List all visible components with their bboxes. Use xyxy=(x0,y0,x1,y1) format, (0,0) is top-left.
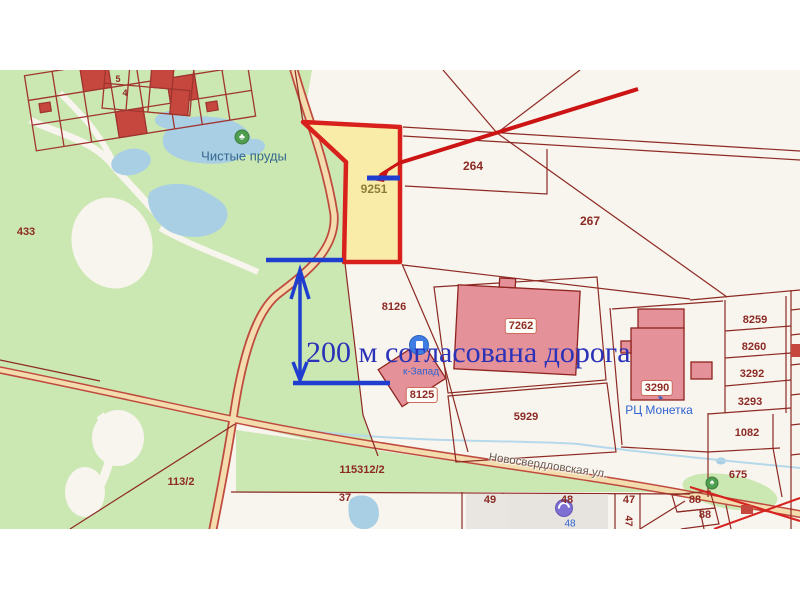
parcel-label-37: 37 xyxy=(339,492,351,504)
parcel-label-7262[interactable]: 7262 xyxy=(505,318,537,334)
park-poi-icon[interactable]: ♣ xyxy=(235,130,250,145)
parcel-label-88b: 88 xyxy=(699,509,711,521)
parcel-label-8259: 8259 xyxy=(743,314,767,326)
parcel-label-3290[interactable]: 3290 xyxy=(641,380,673,396)
parcel-label-8260: 8260 xyxy=(742,341,766,353)
parcel-label-8125[interactable]: 8125 xyxy=(406,387,438,403)
parcel-label-113: 113/2 xyxy=(168,476,195,488)
poi-ponds-label[interactable]: Чистые пруды xyxy=(201,149,287,164)
parcel-label-433: 433 xyxy=(17,226,35,238)
map-canvas[interactable] xyxy=(0,0,800,600)
parcel-label-5929: 5929 xyxy=(514,411,538,423)
parcel-label-5: 5 xyxy=(115,74,120,84)
parcel-label-3292: 3292 xyxy=(740,368,764,380)
poi-building48-label[interactable]: 48 xyxy=(564,519,575,530)
parcel-label-675: 675 xyxy=(729,469,747,481)
parcel-label-8126: 8126 xyxy=(382,301,406,313)
map[interactable]: ♣ ♣ ↷ 5 4 Чистые пруды 433 9251 264 267 … xyxy=(0,0,800,600)
tree-poi-icon[interactable]: ♣ xyxy=(706,477,719,490)
parcel-label-1082: 1082 xyxy=(735,427,759,439)
parcel-label-264: 264 xyxy=(463,159,483,173)
parcel-label-3293: 3293 xyxy=(738,396,762,408)
parcel-label-115312: 115312/2 xyxy=(339,464,384,476)
poi-monetka-label[interactable]: РЦ Монетка xyxy=(625,403,693,417)
parcel-label-4: 4 xyxy=(122,88,127,98)
parcel-label-47: 47 xyxy=(623,494,635,506)
parcel-label-49: 49 xyxy=(484,494,496,506)
parcel-label-9251: 9251 xyxy=(361,182,388,196)
parcel-label-47-rotated: 47 xyxy=(623,515,634,526)
parcel-label-48: 48 xyxy=(561,494,573,506)
annotation-measure-text: 200 м согласована дорога xyxy=(306,336,631,370)
parcel-label-88a: 88 xyxy=(689,494,701,506)
parcel-label-267: 267 xyxy=(580,214,600,228)
